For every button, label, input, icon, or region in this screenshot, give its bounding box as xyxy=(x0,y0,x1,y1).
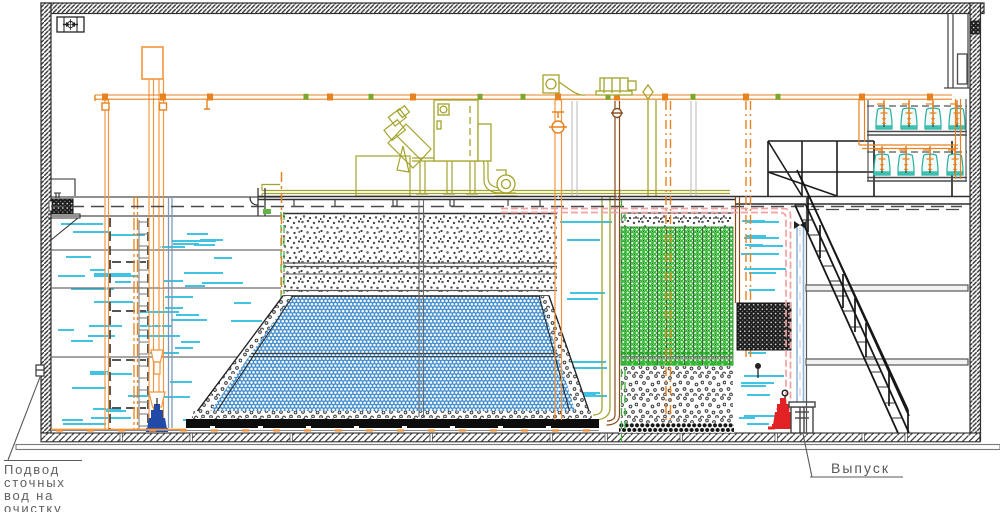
svg-text:Выпуск: Выпуск xyxy=(831,460,890,476)
svg-text:очистку: очистку xyxy=(4,501,62,512)
